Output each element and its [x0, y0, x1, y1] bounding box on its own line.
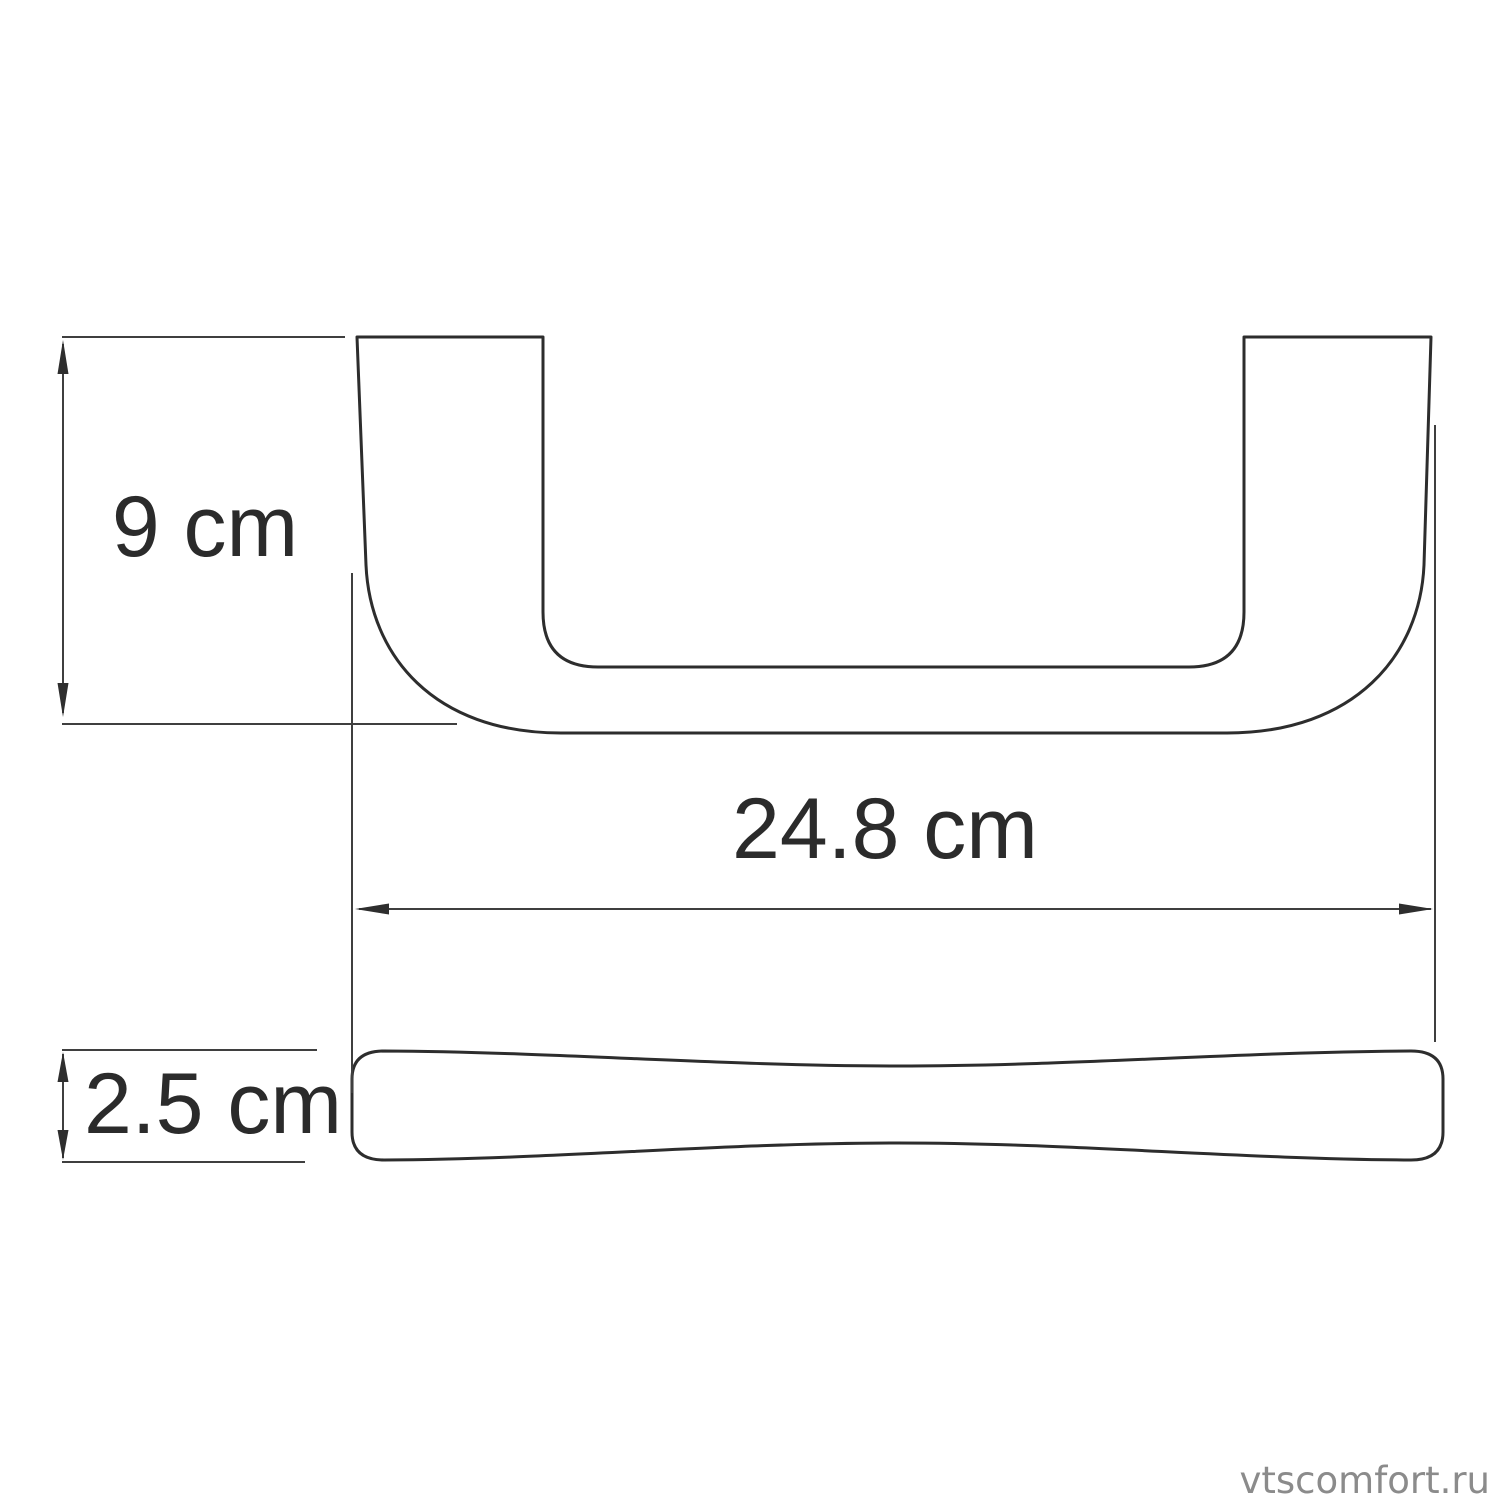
- dimension-diagram: 9 cm 24.8 cm 2.5 cm vtscomfort.ru: [0, 0, 1500, 1500]
- watermark: vtscomfort.ru: [1239, 1459, 1490, 1500]
- side-view: [352, 1051, 1443, 1160]
- height-dimension-label: 9 cm: [112, 479, 298, 575]
- side-view-outline: [352, 1051, 1443, 1160]
- technical-drawing-canvas: 9 cm 24.8 cm 2.5 cm vtscomfort.ru: [0, 0, 1500, 1500]
- front-view: [357, 337, 1431, 733]
- width-arrowhead-left: [355, 904, 389, 915]
- depth-arrowhead-up: [58, 1052, 69, 1082]
- width-arrowhead-right: [1399, 904, 1433, 915]
- depth-dimension-label: 2.5 cm: [84, 1056, 342, 1152]
- height-arrowhead-up: [58, 340, 69, 374]
- width-dimension-label: 24.8 cm: [732, 781, 1038, 877]
- depth-arrowhead-down: [58, 1130, 69, 1160]
- depth-dimension: 2.5 cm: [58, 1050, 343, 1162]
- front-view-outline: [357, 337, 1431, 733]
- height-arrowhead-down: [58, 683, 69, 717]
